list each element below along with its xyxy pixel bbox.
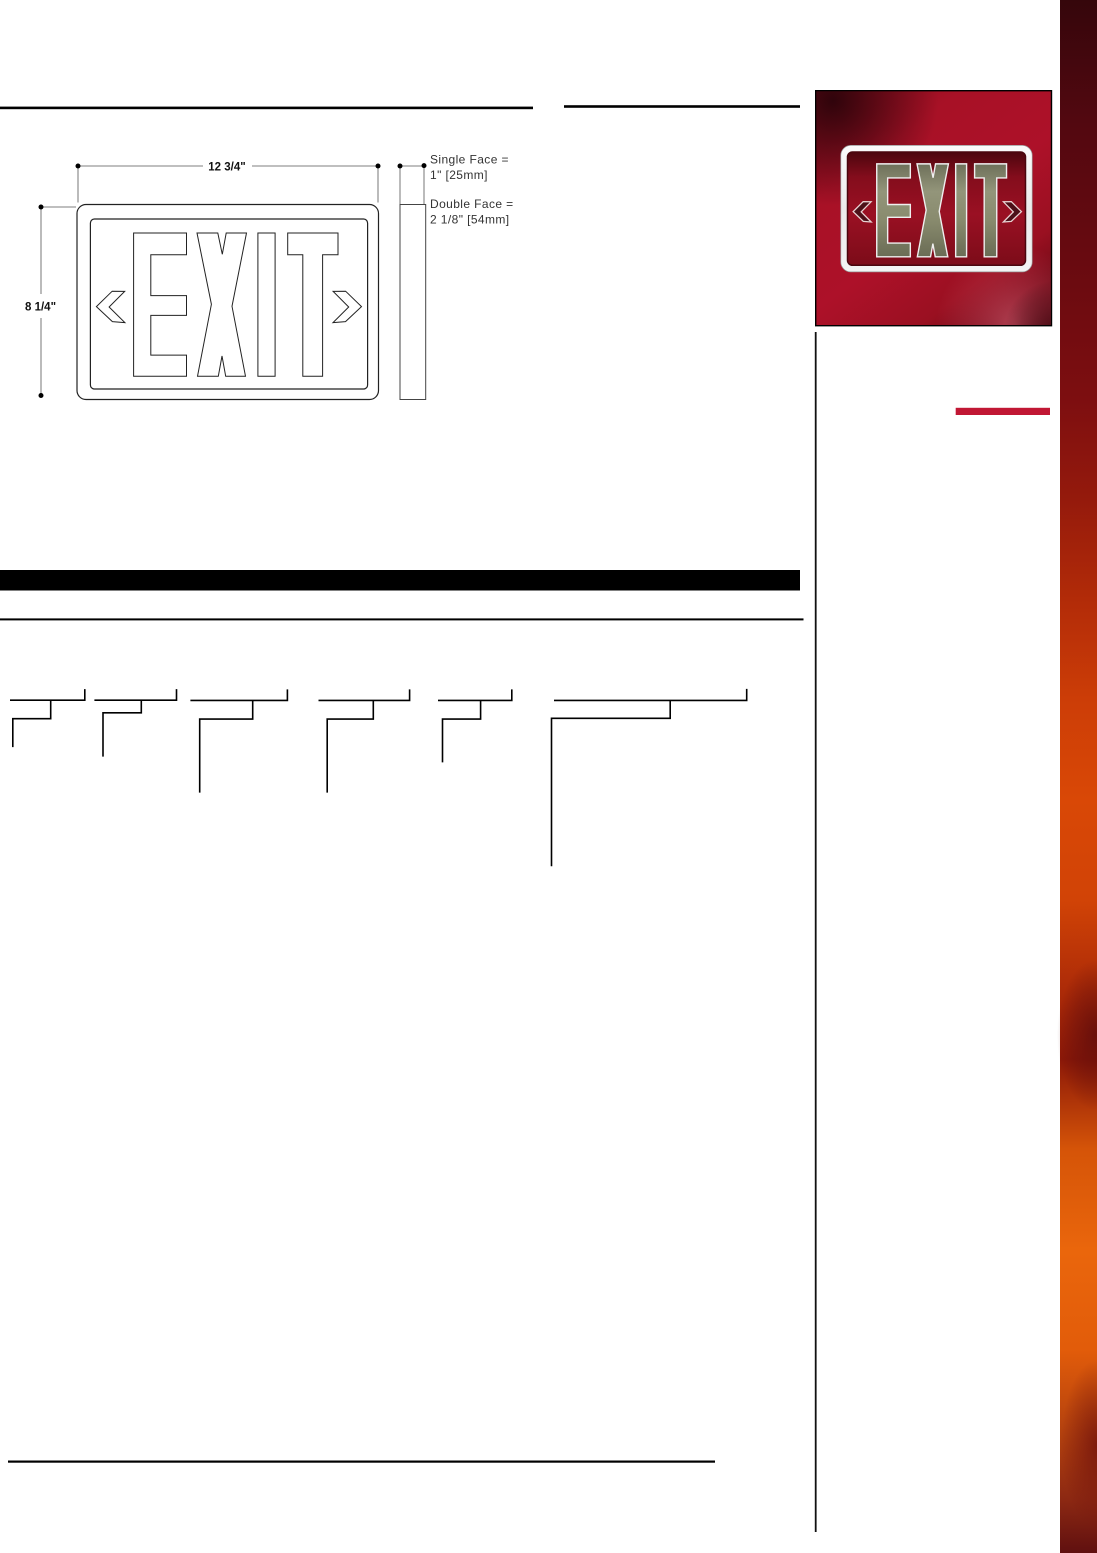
svg-text:Single Face =: Single Face = [430, 153, 509, 167]
svg-text:12 3/4": 12 3/4" [208, 162, 245, 174]
svg-text:1" [25mm]: 1" [25mm] [430, 168, 488, 182]
svg-text:Double Face =: Double Face = [430, 197, 514, 211]
svg-text:2 1/8" [54mm]: 2 1/8" [54mm] [430, 213, 510, 227]
svg-text:8 1/4": 8 1/4" [25, 302, 56, 314]
